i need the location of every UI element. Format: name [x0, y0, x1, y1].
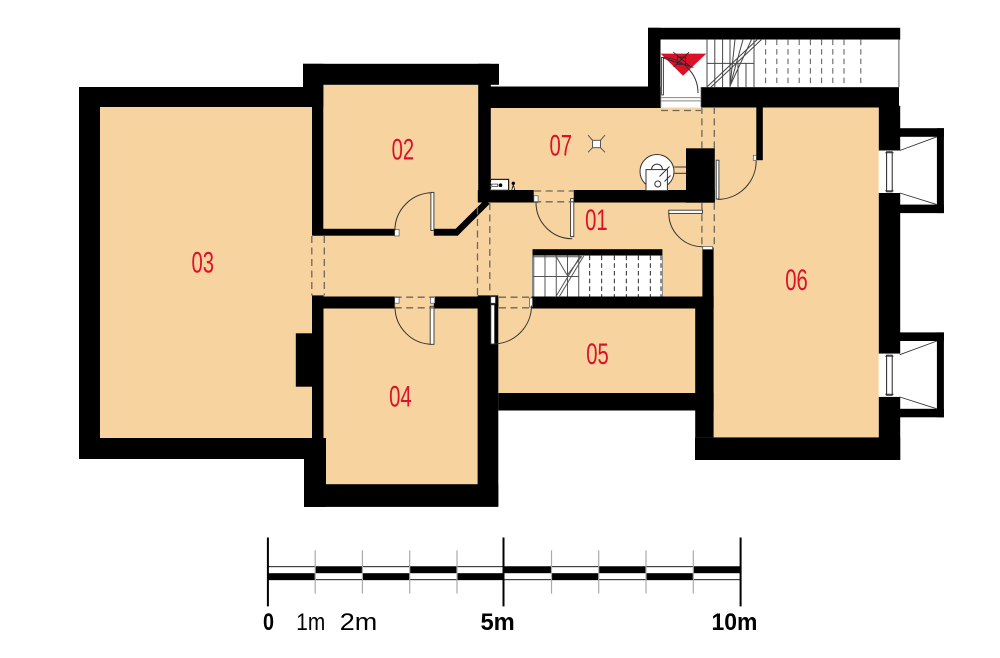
svg-text:07: 07 — [549, 130, 572, 163]
svg-text:03: 03 — [192, 247, 215, 280]
svg-text:02: 02 — [392, 134, 415, 167]
svg-text:01: 01 — [585, 204, 608, 237]
svg-text:10m: 10m — [712, 609, 758, 636]
svg-text:05: 05 — [586, 338, 609, 371]
svg-text:5m: 5m — [480, 609, 514, 636]
svg-text:06: 06 — [785, 264, 808, 297]
svg-text:0: 0 — [263, 609, 274, 636]
svg-text:04: 04 — [389, 381, 412, 414]
svg-text:2m: 2m — [340, 609, 378, 636]
svg-text:1m: 1m — [296, 609, 325, 636]
